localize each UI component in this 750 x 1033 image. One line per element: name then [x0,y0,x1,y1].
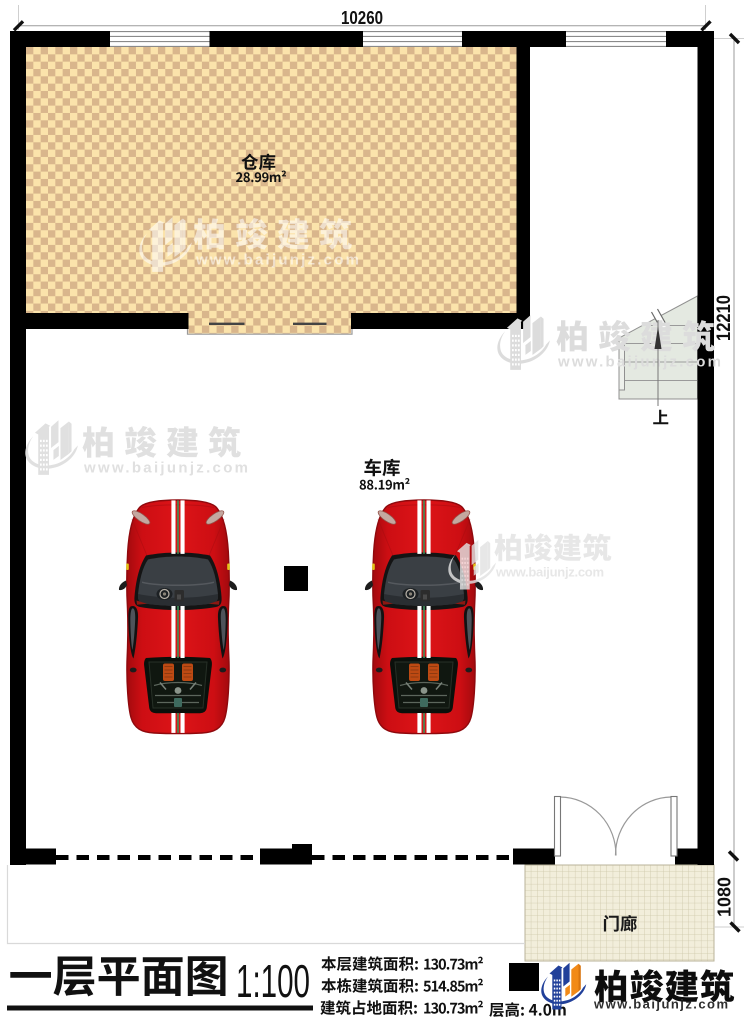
svg-text:www.baijunjz.com: www.baijunjz.com [495,565,604,580]
svg-text:1080: 1080 [714,877,735,917]
svg-text:1:100: 1:100 [236,955,310,1007]
svg-text:10260: 10260 [341,8,383,28]
svg-text:12210: 12210 [713,295,735,341]
svg-text:www.baijunjz.com: www.baijunjz.com [593,997,728,1012]
